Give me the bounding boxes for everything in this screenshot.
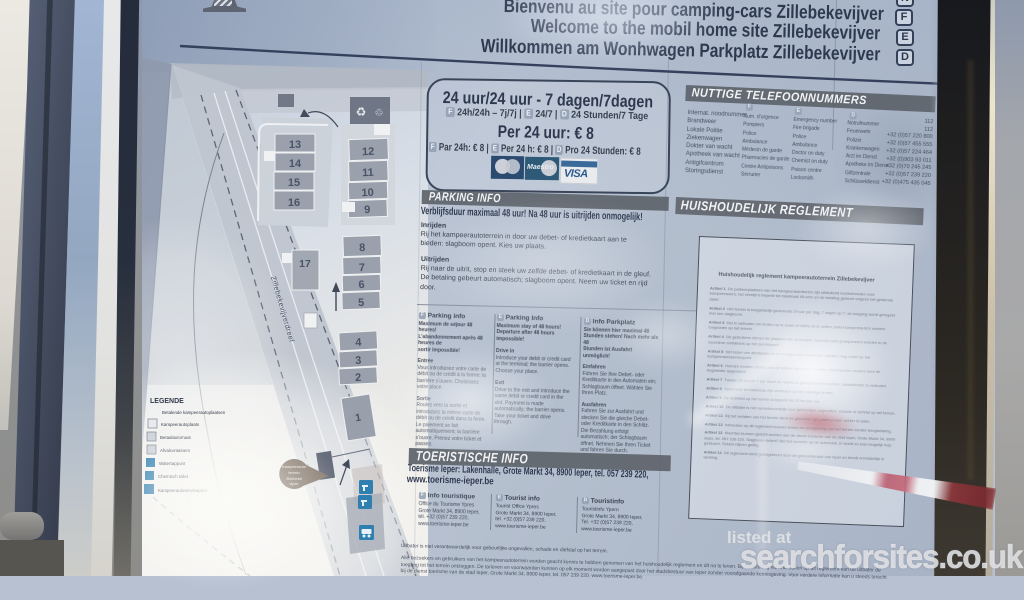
svg-text:10: 10 [361,187,374,199]
svg-text:2: 2 [355,372,362,384]
svg-text:7: 7 [359,262,366,274]
svg-text:17: 17 [299,258,311,270]
svg-text:terrein: terrein [288,470,299,475]
svg-text:♻: ♻ [356,105,367,119]
svg-text:LEGENDE: LEGENDE [150,398,184,405]
svg-text:Kampeerautoplaats: Kampeerautoplaats [161,422,200,427]
svg-text:11: 11 [362,167,374,179]
svg-text:♲: ♲ [375,108,384,119]
svg-text:Betaalautomaat: Betaalautomaat [160,435,192,440]
svg-text:Kampeerauto: Kampeerauto [282,464,307,469]
svg-text:vijver: vijver [289,481,299,486]
svg-text:Watertappunt: Watertappunt [159,461,186,466]
svg-text:Afvalcontainers: Afvalcontainers [160,448,191,453]
svg-text:8: 8 [359,242,366,254]
svg-text:Betalende kampeerautoplaatsen: Betalende kampeerautoplaatsen [162,410,226,415]
svg-text:14: 14 [289,158,302,170]
svg-text:16: 16 [288,197,300,209]
svg-text:5: 5 [358,297,365,309]
svg-text:12: 12 [362,146,375,158]
svg-text:6: 6 [358,279,365,291]
svg-text:Kampeerautoservicepunt: Kampeerautoservicepunt [158,488,208,493]
svg-text:Chemisch toilet: Chemisch toilet [158,474,189,479]
svg-text:9: 9 [364,204,371,216]
svg-text:15: 15 [288,177,300,189]
svg-text:3: 3 [355,355,362,367]
svg-text:13: 13 [289,139,301,151]
